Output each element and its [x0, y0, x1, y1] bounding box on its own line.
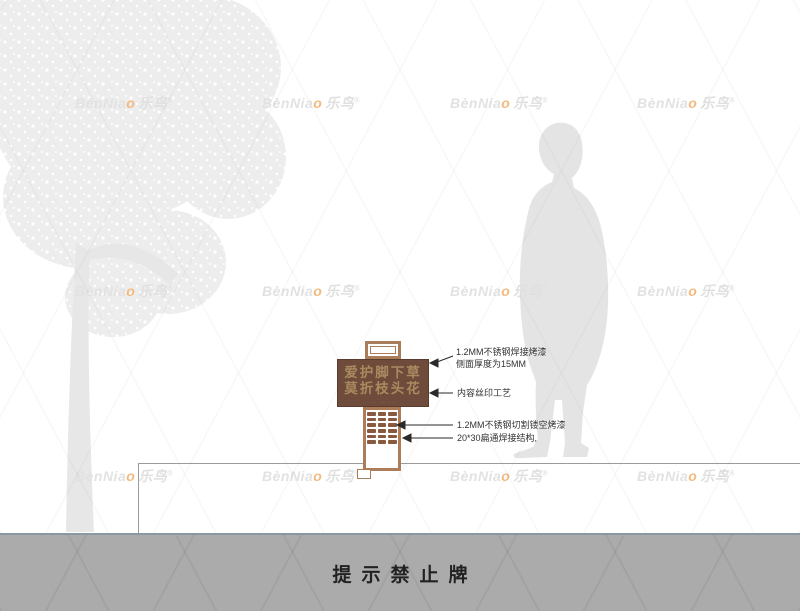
- annotation-weld-paint-line2: 侧面厚度为15MM: [456, 358, 547, 370]
- tree-canopy: [0, 0, 286, 337]
- brand-watermark: BènNiao乐鸟®: [637, 93, 735, 113]
- annotation-cutout-paint: 1.2MM不锈钢切割镂空烤漆: [457, 419, 566, 431]
- sign-board: 爱护脚下草 莫折枝头花 ·· ·· ··: [337, 359, 429, 407]
- person-silhouette: [505, 95, 625, 465]
- annotation-weld-paint-line1: 1.2MM不锈钢焊接烤漆: [456, 346, 547, 358]
- annotation-weld-paint: 1.2MM不锈钢焊接烤漆 侧面厚度为15MM: [456, 346, 547, 370]
- annotation-tube-structure: 20*30扁通焊接结构,: [457, 432, 537, 444]
- sign-top-cap-inner: [370, 346, 396, 354]
- platform-step: [138, 463, 800, 533]
- sign-top-cap: [365, 341, 401, 359]
- design-sheet: BènNiao乐鸟®BènNiao乐鸟®BènNiao乐鸟®BènNiao乐鸟®…: [0, 0, 800, 611]
- annotation-silkscreen: 内容丝印工艺: [457, 387, 511, 399]
- brand-watermark: BènNiao乐鸟®: [637, 281, 735, 301]
- sign-small-text: ·· ·· ··: [338, 400, 428, 406]
- sign-text-line2: 莫折枝头花: [338, 381, 428, 397]
- footer-title-bar: 提示禁止牌: [0, 533, 800, 611]
- tree-illustration: [0, 0, 288, 537]
- page-title: 提示禁止牌: [322, 560, 477, 587]
- sign-base-plate: [357, 469, 371, 479]
- sign-lattice-pattern: [366, 411, 398, 445]
- sign-post: [363, 407, 401, 471]
- sign-text-line1: 爱护脚下草: [338, 365, 428, 381]
